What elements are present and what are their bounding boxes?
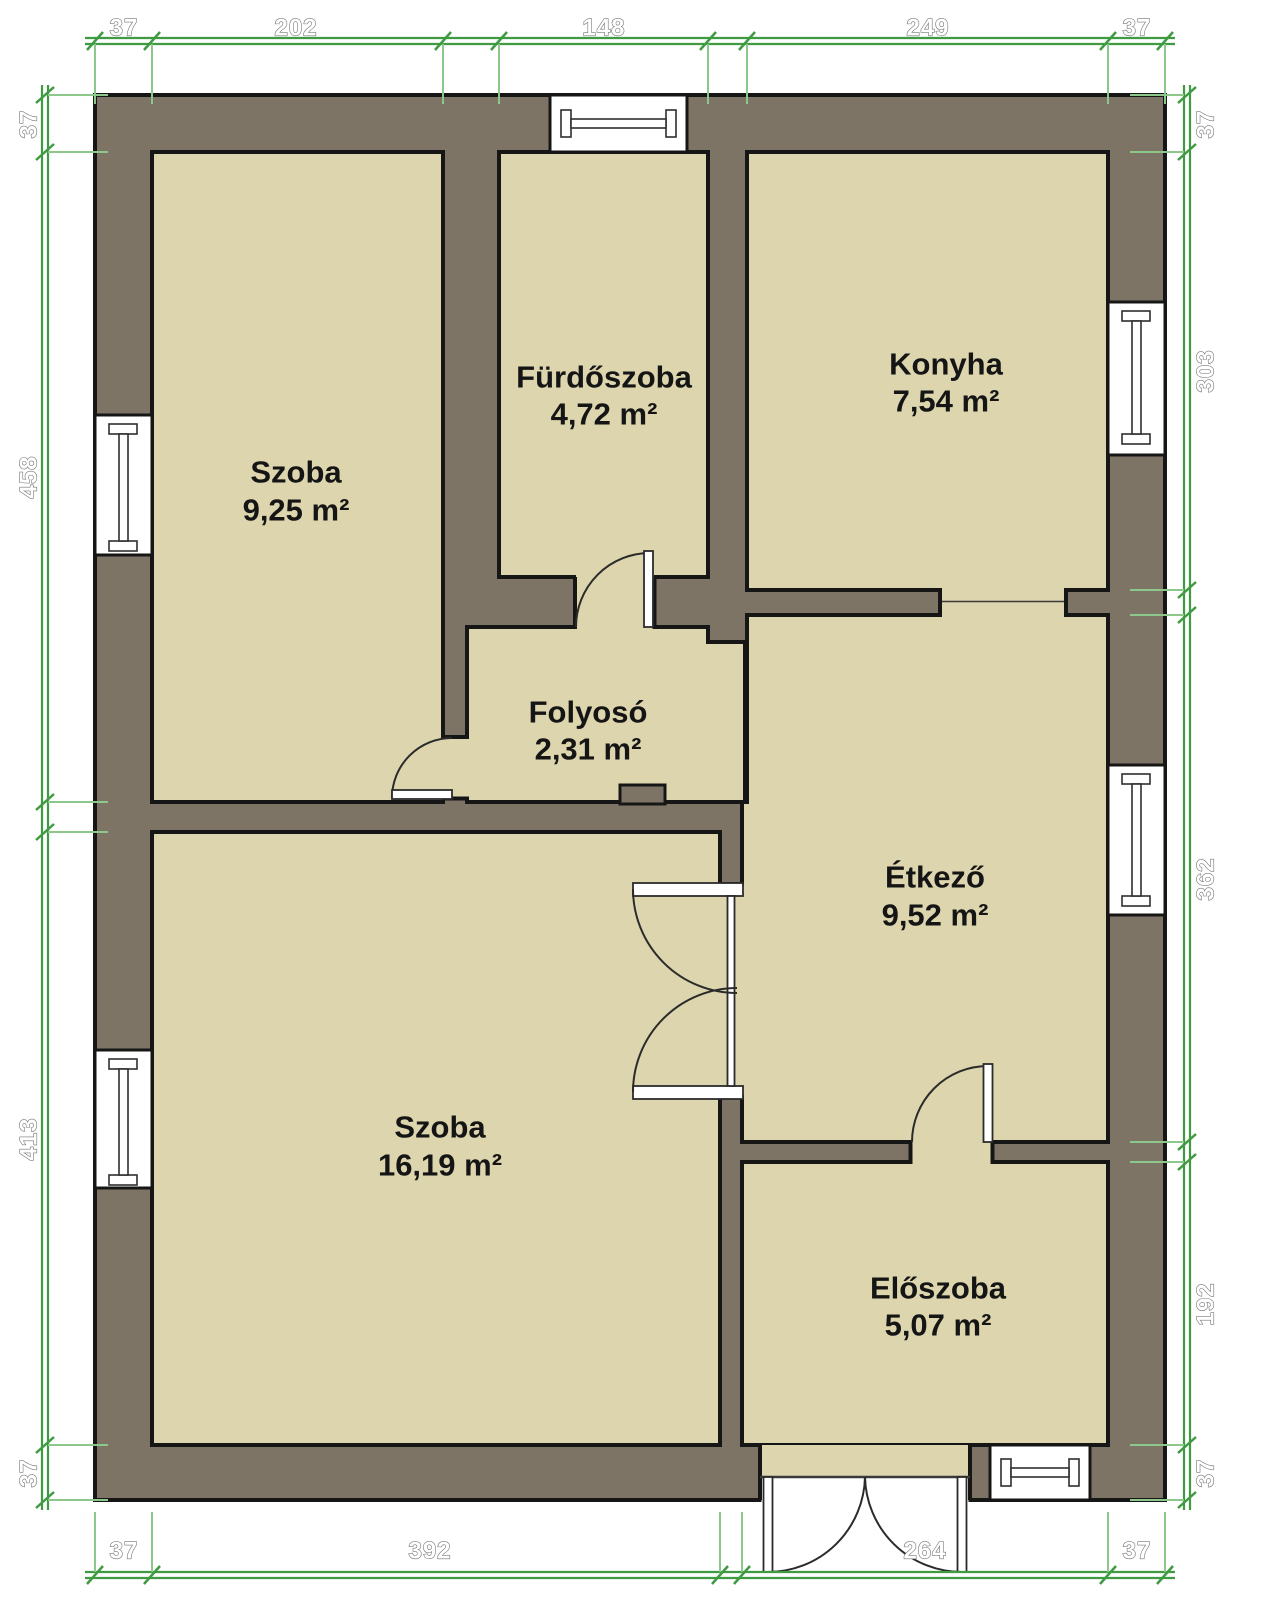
dim-label: 148 — [582, 15, 625, 42]
window-symbol-top — [550, 95, 687, 152]
passage-konyha-etkezo — [940, 588, 1066, 617]
room-area-szoba-bottom: 16,19 m² — [378, 1148, 502, 1183]
dim-label: 37 — [110, 15, 139, 42]
dim-label: 37 — [1193, 1459, 1220, 1488]
window-symbol-bottom — [990, 1445, 1090, 1500]
window-symbol-right-1 — [1108, 302, 1165, 455]
room-label-etkezo: Étkező — [885, 860, 985, 895]
room-area-furdoszoba: 4,72 m² — [551, 397, 658, 432]
wall-notch — [620, 785, 665, 804]
room-label-szoba-bottom: Szoba — [394, 1110, 486, 1145]
room-area-eloszoba: 5,07 m² — [885, 1308, 992, 1343]
room-label-konyha: Konyha — [889, 347, 1003, 382]
dim-label: 37 — [16, 110, 43, 139]
room-label-folyoso: Folyosó — [529, 695, 648, 730]
room-area-konyha: 7,54 m² — [893, 384, 1000, 419]
dim-label: 303 — [1193, 349, 1220, 392]
door-opening-furdoszoba — [575, 575, 655, 629]
dim-label: 392 — [408, 1538, 451, 1565]
room-label-furdoszoba: Fürdőszoba — [516, 360, 692, 395]
window-symbol-left-1 — [95, 415, 152, 555]
dim-label: 37 — [1123, 1538, 1152, 1565]
room-area-etkezo: 9,52 m² — [882, 898, 989, 933]
floor-plan-page: 37 202 148 249 37 37 392 264 37 37 458 4… — [0, 0, 1284, 1600]
room-label-eloszoba: Előszoba — [870, 1271, 1007, 1306]
dim-label: 249 — [906, 15, 949, 42]
dim-label: 362 — [1193, 857, 1220, 900]
dim-label: 37 — [1193, 110, 1220, 139]
window-symbol-left-2 — [95, 1050, 152, 1188]
dim-label: 37 — [110, 1538, 139, 1565]
dim-label: 37 — [16, 1459, 43, 1488]
dim-label: 264 — [903, 1538, 946, 1565]
dim-label: 202 — [274, 15, 317, 42]
door-opening-eloszoba — [911, 1140, 993, 1164]
dim-label: 458 — [16, 455, 43, 498]
entrance-opening — [760, 1445, 970, 1502]
window-symbol-right-2 — [1108, 765, 1165, 915]
room-area-folyoso: 2,31 m² — [535, 732, 642, 767]
room-label-szoba-top: Szoba — [250, 455, 342, 490]
floor-plan: 37 202 148 249 37 37 392 264 37 37 458 4… — [0, 0, 1284, 1600]
dim-label: 37 — [1123, 15, 1152, 42]
room-area-szoba-top: 9,25 m² — [243, 493, 350, 528]
dim-label: 192 — [1193, 1282, 1220, 1325]
dim-label: 413 — [16, 1117, 43, 1160]
